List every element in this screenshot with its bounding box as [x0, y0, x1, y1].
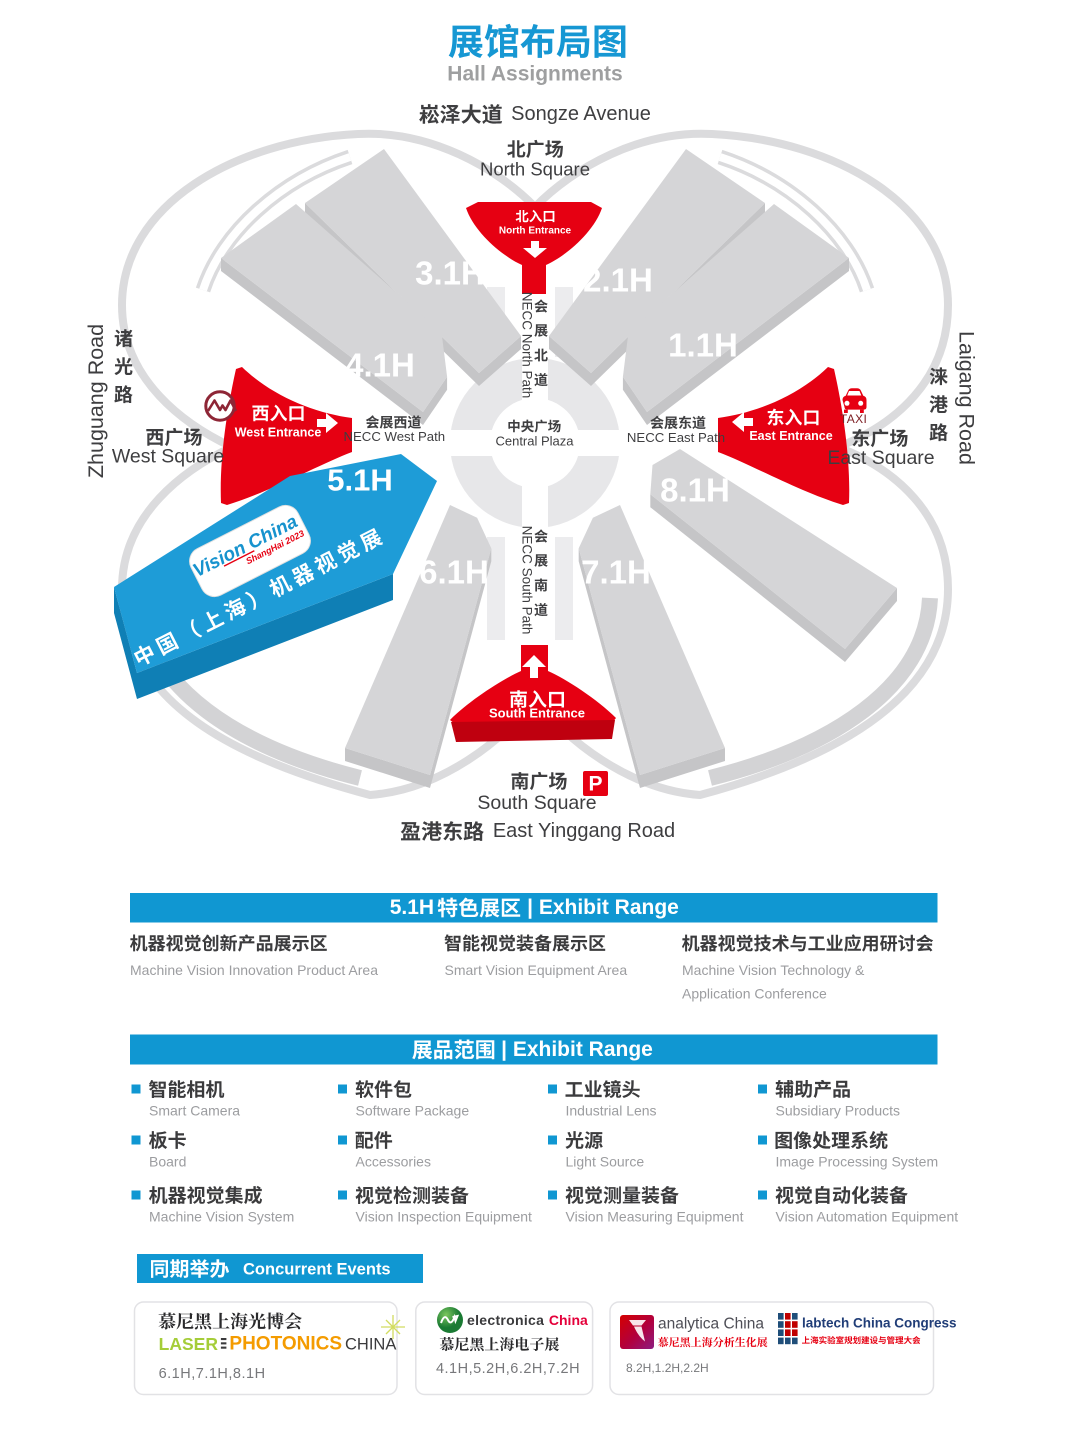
- svg-text:8.2H,1.2H,2.2H: 8.2H,1.2H,2.2H: [626, 1361, 709, 1375]
- svg-text:5.1H: 5.1H: [327, 463, 392, 498]
- svg-text:4.1H: 4.1H: [345, 347, 415, 384]
- svg-text:Board: Board: [149, 1154, 186, 1170]
- svg-text:Machine Vision Technology &: Machine Vision Technology &: [682, 962, 865, 978]
- svg-text:NECC North Path: NECC North Path: [520, 292, 535, 399]
- svg-text:Industrial Lens: Industrial Lens: [566, 1103, 657, 1119]
- svg-text:1.1H: 1.1H: [668, 327, 738, 364]
- svg-text:West Square: West Square: [112, 446, 224, 468]
- svg-text:3.1H: 3.1H: [415, 255, 485, 292]
- svg-text:NECC South Path: NECC South Path: [520, 526, 535, 635]
- svg-text:4.1H,5.2H,6.2H,7.2H: 4.1H,5.2H,6.2H,7.2H: [436, 1361, 580, 1377]
- svg-text:Accessories: Accessories: [356, 1154, 431, 1170]
- svg-text:South Entrance: South Entrance: [489, 706, 585, 721]
- svg-text:2.1H: 2.1H: [583, 262, 653, 299]
- svg-text:East Yinggang Road: East Yinggang Road: [493, 820, 675, 842]
- svg-text:P: P: [588, 773, 602, 796]
- svg-text:East Entrance: East Entrance: [749, 429, 832, 443]
- svg-text:6.1H,7.1H,8.1H: 6.1H,7.1H,8.1H: [159, 1366, 266, 1382]
- svg-text:electronica: electronica: [467, 1312, 544, 1328]
- svg-text:Smart Vision Equipment Area: Smart Vision Equipment Area: [445, 962, 628, 978]
- svg-text:East Square: East Square: [827, 447, 934, 469]
- svg-text:North Entrance: North Entrance: [499, 226, 572, 237]
- svg-text:8.1H: 8.1H: [660, 472, 730, 509]
- svg-text:NECC East Path: NECC East Path: [627, 430, 725, 445]
- svg-text:TAXI: TAXI: [840, 412, 867, 426]
- svg-text:Machine Vision System: Machine Vision System: [149, 1209, 294, 1225]
- svg-text:labtech China Congress: labtech China Congress: [802, 1316, 957, 1331]
- svg-text:South Square: South Square: [477, 792, 596, 814]
- svg-text:China: China: [549, 1312, 588, 1328]
- svg-text:analytica China: analytica China: [658, 1316, 764, 1333]
- svg-text:NECC West Path: NECC West Path: [343, 429, 445, 444]
- svg-text:Smart Camera: Smart Camera: [149, 1103, 240, 1119]
- svg-text:7.1H: 7.1H: [581, 554, 651, 591]
- svg-text:Hall Assignments: Hall Assignments: [447, 63, 622, 86]
- svg-text:North Square: North Square: [480, 159, 590, 180]
- svg-text:Light Source: Light Source: [566, 1154, 645, 1170]
- svg-text:Vision Measuring Equipment: Vision Measuring Equipment: [566, 1209, 744, 1225]
- svg-text:Vision Inspection Equipment: Vision Inspection Equipment: [356, 1209, 533, 1225]
- svg-text:Software Package: Software Package: [356, 1103, 470, 1119]
- svg-text:Concurrent Events: Concurrent Events: [243, 1261, 391, 1279]
- svg-text:Subsidiary Products: Subsidiary Products: [776, 1103, 901, 1119]
- svg-text:6.1H: 6.1H: [419, 554, 489, 591]
- svg-text:CHINA: CHINA: [345, 1336, 396, 1354]
- svg-text:Application Conference: Application Conference: [682, 986, 827, 1002]
- svg-text:Laigang Road: Laigang Road: [955, 331, 979, 465]
- svg-text:LASER: LASER: [159, 1334, 219, 1354]
- svg-text:Central Plaza: Central Plaza: [495, 434, 574, 449]
- svg-text:Machine Vision Innovation Prod: Machine Vision Innovation Product Area: [130, 962, 378, 978]
- svg-text:PHOTONICS: PHOTONICS: [229, 1334, 342, 1355]
- svg-text:| Exhibit Range: | Exhibit Range: [501, 1038, 653, 1061]
- svg-text:Image Processing System: Image Processing System: [776, 1154, 939, 1170]
- svg-text:West Entrance: West Entrance: [235, 426, 322, 440]
- svg-text:Zhuguang Road: Zhuguang Road: [84, 324, 108, 478]
- svg-text:Songze Avenue: Songze Avenue: [511, 103, 651, 125]
- svg-text:| Exhibit Range: | Exhibit Range: [527, 896, 679, 919]
- svg-text:5.1H: 5.1H: [390, 896, 434, 919]
- svg-text:Vision Automation Equipment: Vision Automation Equipment: [776, 1209, 959, 1225]
